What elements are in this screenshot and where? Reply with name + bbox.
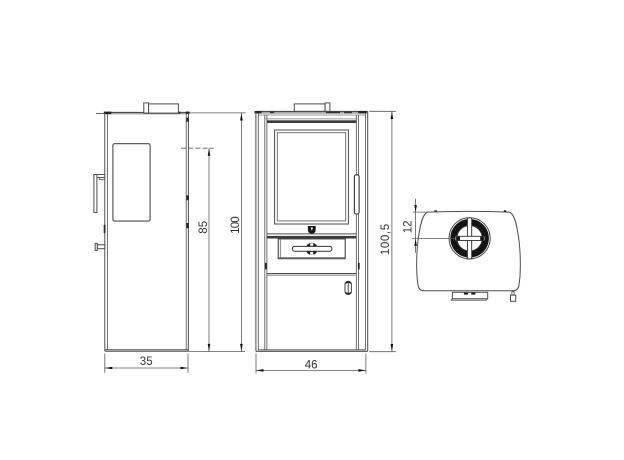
svg-text:12: 12 <box>403 221 415 234</box>
svg-text:100: 100 <box>230 217 242 234</box>
svg-text:35: 35 <box>140 356 153 368</box>
svg-text:85: 85 <box>198 221 210 234</box>
svg-text:46: 46 <box>305 359 318 371</box>
svg-text:100,5: 100,5 <box>380 223 392 255</box>
